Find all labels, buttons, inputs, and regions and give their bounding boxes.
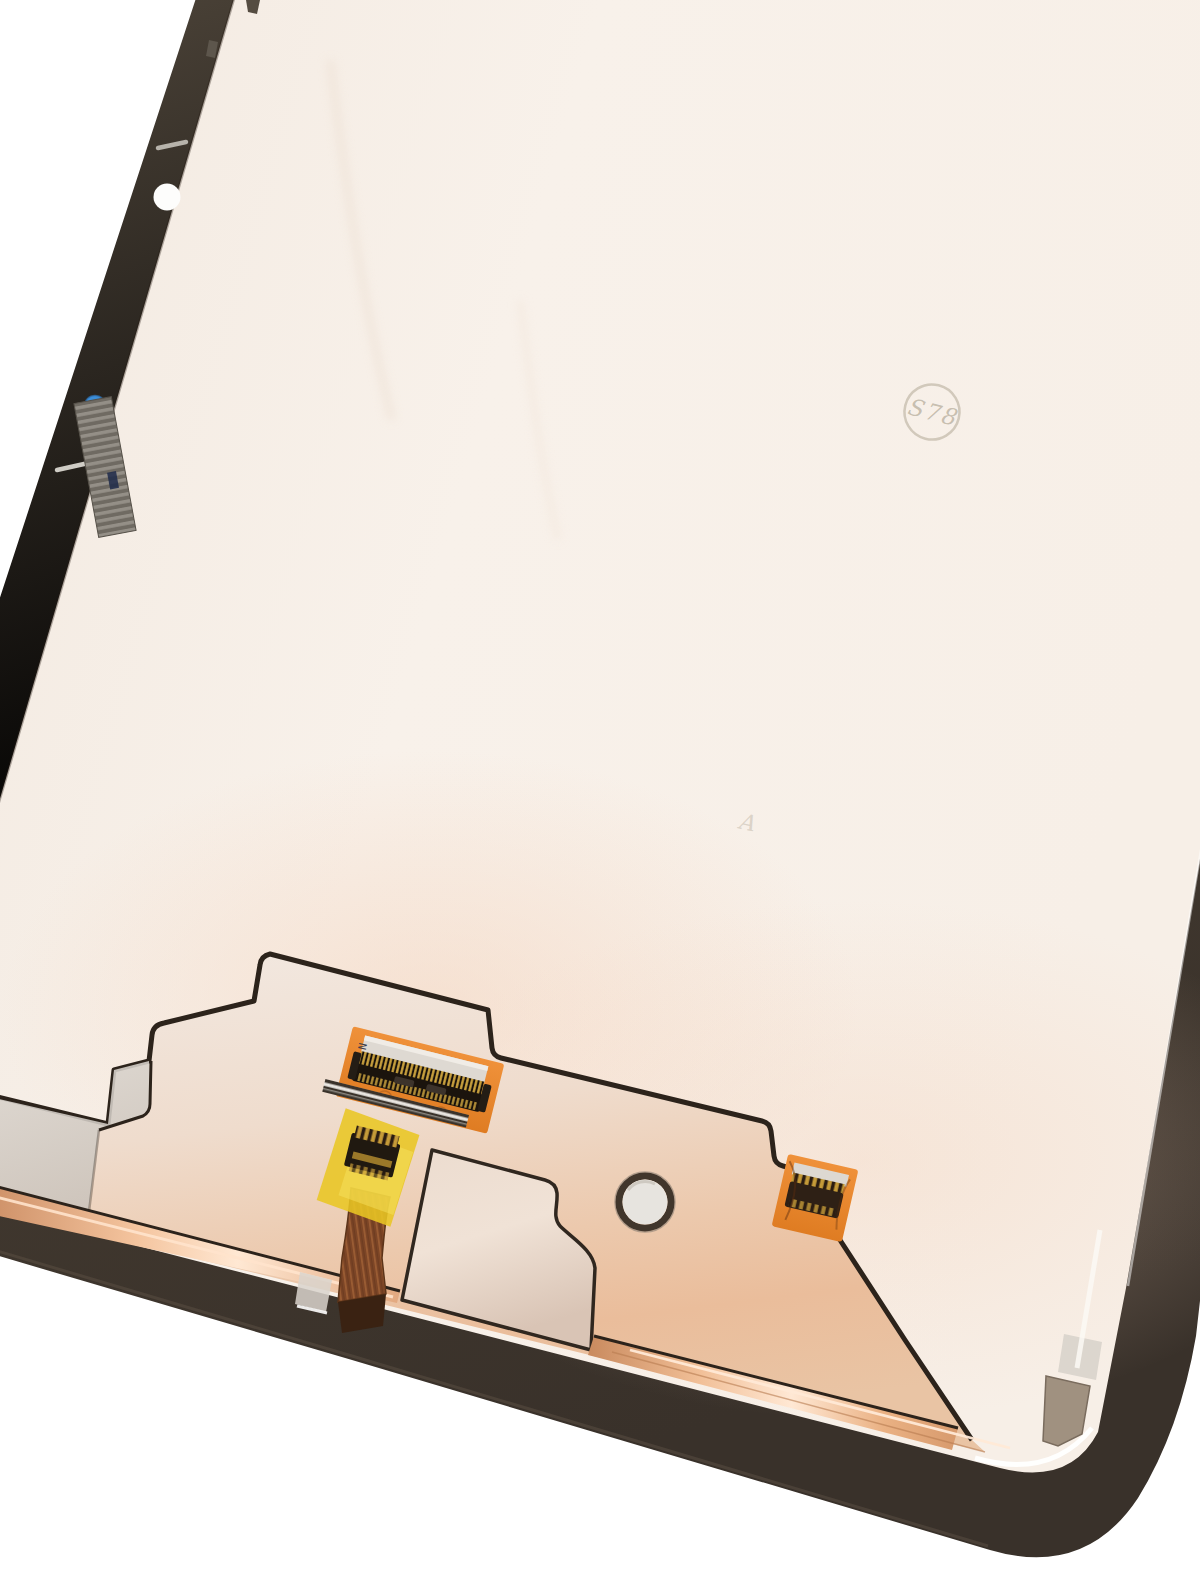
assembly-photo: S78 A N (0, 0, 1200, 1586)
white-dot-sticker (154, 184, 181, 211)
alignment-hole (615, 1172, 675, 1232)
photo-stage: S78 A N (0, 0, 1200, 1586)
